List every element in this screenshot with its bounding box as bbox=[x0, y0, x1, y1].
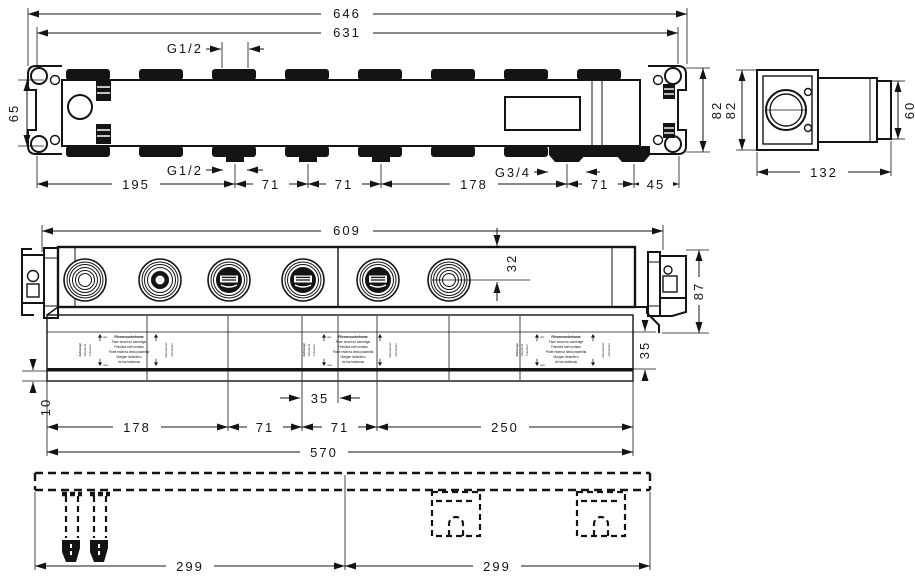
top-left-bracket bbox=[28, 66, 62, 154]
dim-82-side: 82 bbox=[723, 101, 738, 119]
strip-line4: Parte esterna della piastrella bbox=[333, 350, 374, 354]
dim-299-right: 299 bbox=[483, 559, 511, 574]
port-4-valve bbox=[282, 259, 324, 301]
bottom-left-bracket bbox=[62, 494, 110, 562]
strip-line2: Face avant du carrelage bbox=[549, 340, 584, 344]
strip-side-label: Attention! bbox=[520, 344, 524, 357]
top-view: 646 631 G1/2 65 82 bbox=[6, 6, 724, 192]
dim-631: 631 bbox=[333, 25, 361, 40]
strip-line6: de las baldosas bbox=[555, 360, 578, 364]
strip-line2: Face avant du carrelage bbox=[336, 340, 371, 344]
outlet-stub-g34 bbox=[549, 146, 585, 162]
strip-max: max. bbox=[103, 364, 109, 367]
dim-71b: 71 bbox=[335, 177, 353, 192]
dim-35-strip: 35 bbox=[637, 341, 652, 359]
front-right-bracket bbox=[648, 252, 686, 316]
strip-side-label: Attention! bbox=[307, 344, 311, 357]
dim-65: 65 bbox=[6, 104, 21, 122]
thread-g12-top: G1/2 bbox=[167, 41, 203, 56]
side-housing bbox=[818, 78, 891, 142]
strip-line5: Margen delantero bbox=[554, 355, 579, 359]
outlet-stub bbox=[616, 146, 650, 162]
strip-line1: Fliesenvorderkante bbox=[551, 335, 580, 339]
dim-71c: 71 bbox=[591, 177, 609, 192]
dim-250: 250 bbox=[491, 420, 519, 435]
bottom-view: 299 299 bbox=[35, 473, 650, 574]
wall-surface-line bbox=[47, 368, 633, 372]
dim-71-front-b: 71 bbox=[331, 420, 349, 435]
port-2 bbox=[139, 259, 181, 301]
thread-g12-bottom: G1/2 bbox=[167, 163, 203, 178]
strip-side-label: Caution! bbox=[88, 344, 92, 355]
strip-line3: Finished wall surface bbox=[551, 345, 581, 349]
inlet-stub bbox=[226, 146, 244, 162]
dim-87: 87 bbox=[691, 282, 706, 300]
dim-178-top: 178 bbox=[460, 177, 488, 192]
strip-line6: de las baldosas bbox=[342, 360, 365, 364]
front-left-bracket bbox=[22, 248, 58, 318]
strip-side-label: Attention! bbox=[83, 344, 87, 357]
port-5-valve bbox=[357, 259, 399, 301]
strip-max: max. bbox=[540, 364, 546, 367]
dim-178-front: 178 bbox=[123, 420, 151, 435]
strip-side-label: Achtung! bbox=[302, 343, 306, 356]
strip-line3: Finished wall surface bbox=[114, 345, 144, 349]
port-3-valve bbox=[208, 259, 250, 301]
strip-side-label: ¡Atención! bbox=[394, 343, 398, 357]
dim-609: 609 bbox=[333, 223, 361, 238]
strip-line4: Parte esterna della piastrella bbox=[546, 350, 587, 354]
strip-side-label: Achtung! bbox=[78, 343, 82, 356]
side-spigot bbox=[877, 81, 891, 139]
dim-32: 32 bbox=[504, 254, 519, 272]
top-right-bracket bbox=[648, 66, 686, 154]
strip-side-label: Caution! bbox=[312, 344, 316, 355]
dim-299-left: 299 bbox=[176, 559, 204, 574]
strip-min: min. bbox=[540, 335, 545, 339]
screw-port bbox=[68, 95, 92, 119]
front-view: Achtung! Attention! Caution! min. max. F… bbox=[22, 223, 709, 460]
dim-71a: 71 bbox=[262, 177, 280, 192]
strip-label-group: Achtung! Attention! Caution! min. max. F… bbox=[78, 334, 174, 367]
strip-side-label: Achtung! bbox=[515, 343, 519, 356]
side-bracket bbox=[757, 70, 818, 150]
strip-label-group: Achtung! Attention! Caution! min. max. F… bbox=[302, 334, 398, 367]
strip-label-group: Achtung! Attention! Caution! min. max. F… bbox=[515, 334, 611, 367]
bottom-box-left bbox=[432, 492, 480, 536]
strip-line5: Margen delantero bbox=[117, 355, 142, 359]
dim-132: 132 bbox=[810, 165, 838, 180]
bottom-box-right bbox=[577, 492, 625, 536]
strip-side-label: Caution! bbox=[525, 344, 529, 355]
strip-min: min. bbox=[327, 335, 332, 339]
top-body bbox=[62, 69, 650, 162]
label-plate bbox=[505, 97, 580, 130]
thread-g34: G3/4 bbox=[495, 165, 531, 180]
inlet-stub bbox=[372, 146, 390, 162]
strip-min: min. bbox=[103, 335, 108, 339]
dim-82-right: 82 bbox=[709, 101, 724, 119]
strip-line2: Face avant du carrelage bbox=[112, 340, 147, 344]
dim-10: 10 bbox=[38, 398, 53, 416]
inlet-stub bbox=[299, 146, 317, 162]
front-body bbox=[47, 247, 659, 333]
dim-646: 646 bbox=[333, 6, 361, 21]
dim-35-center: 35 bbox=[311, 391, 329, 406]
top-dimensions: 646 631 G1/2 65 82 bbox=[6, 6, 724, 192]
dim-71-front-a: 71 bbox=[256, 420, 274, 435]
strip-line3: Finished wall surface bbox=[338, 345, 368, 349]
strip-side-label: ¡Atención! bbox=[170, 343, 174, 357]
strip-line1: Fliesenvorderkante bbox=[114, 335, 143, 339]
dim-570: 570 bbox=[310, 445, 338, 460]
strip-line4: Parte esterna della piastrella bbox=[109, 350, 150, 354]
strip-side-label: Attenzione! bbox=[388, 342, 392, 357]
dim-45: 45 bbox=[647, 177, 665, 192]
strip-side-label: Attenzione! bbox=[164, 342, 168, 357]
strip-side-label: Attenzione! bbox=[601, 342, 605, 357]
port-1 bbox=[64, 259, 106, 301]
template-sheet: Achtung! Attention! Caution! min. max. F… bbox=[47, 315, 633, 381]
dim-195: 195 bbox=[122, 177, 150, 192]
strip-line1: Fliesenvorderkante bbox=[338, 335, 367, 339]
strip-max: max. bbox=[327, 364, 333, 367]
technical-drawing: 646 631 G1/2 65 82 bbox=[0, 0, 915, 576]
side-view: 82 60 132 bbox=[723, 70, 915, 180]
strip-side-label: ¡Atención! bbox=[607, 343, 611, 357]
strip-line5: Margen delantero bbox=[341, 355, 366, 359]
strip-line6: de las baldosas bbox=[118, 360, 141, 364]
dim-60: 60 bbox=[902, 101, 915, 119]
